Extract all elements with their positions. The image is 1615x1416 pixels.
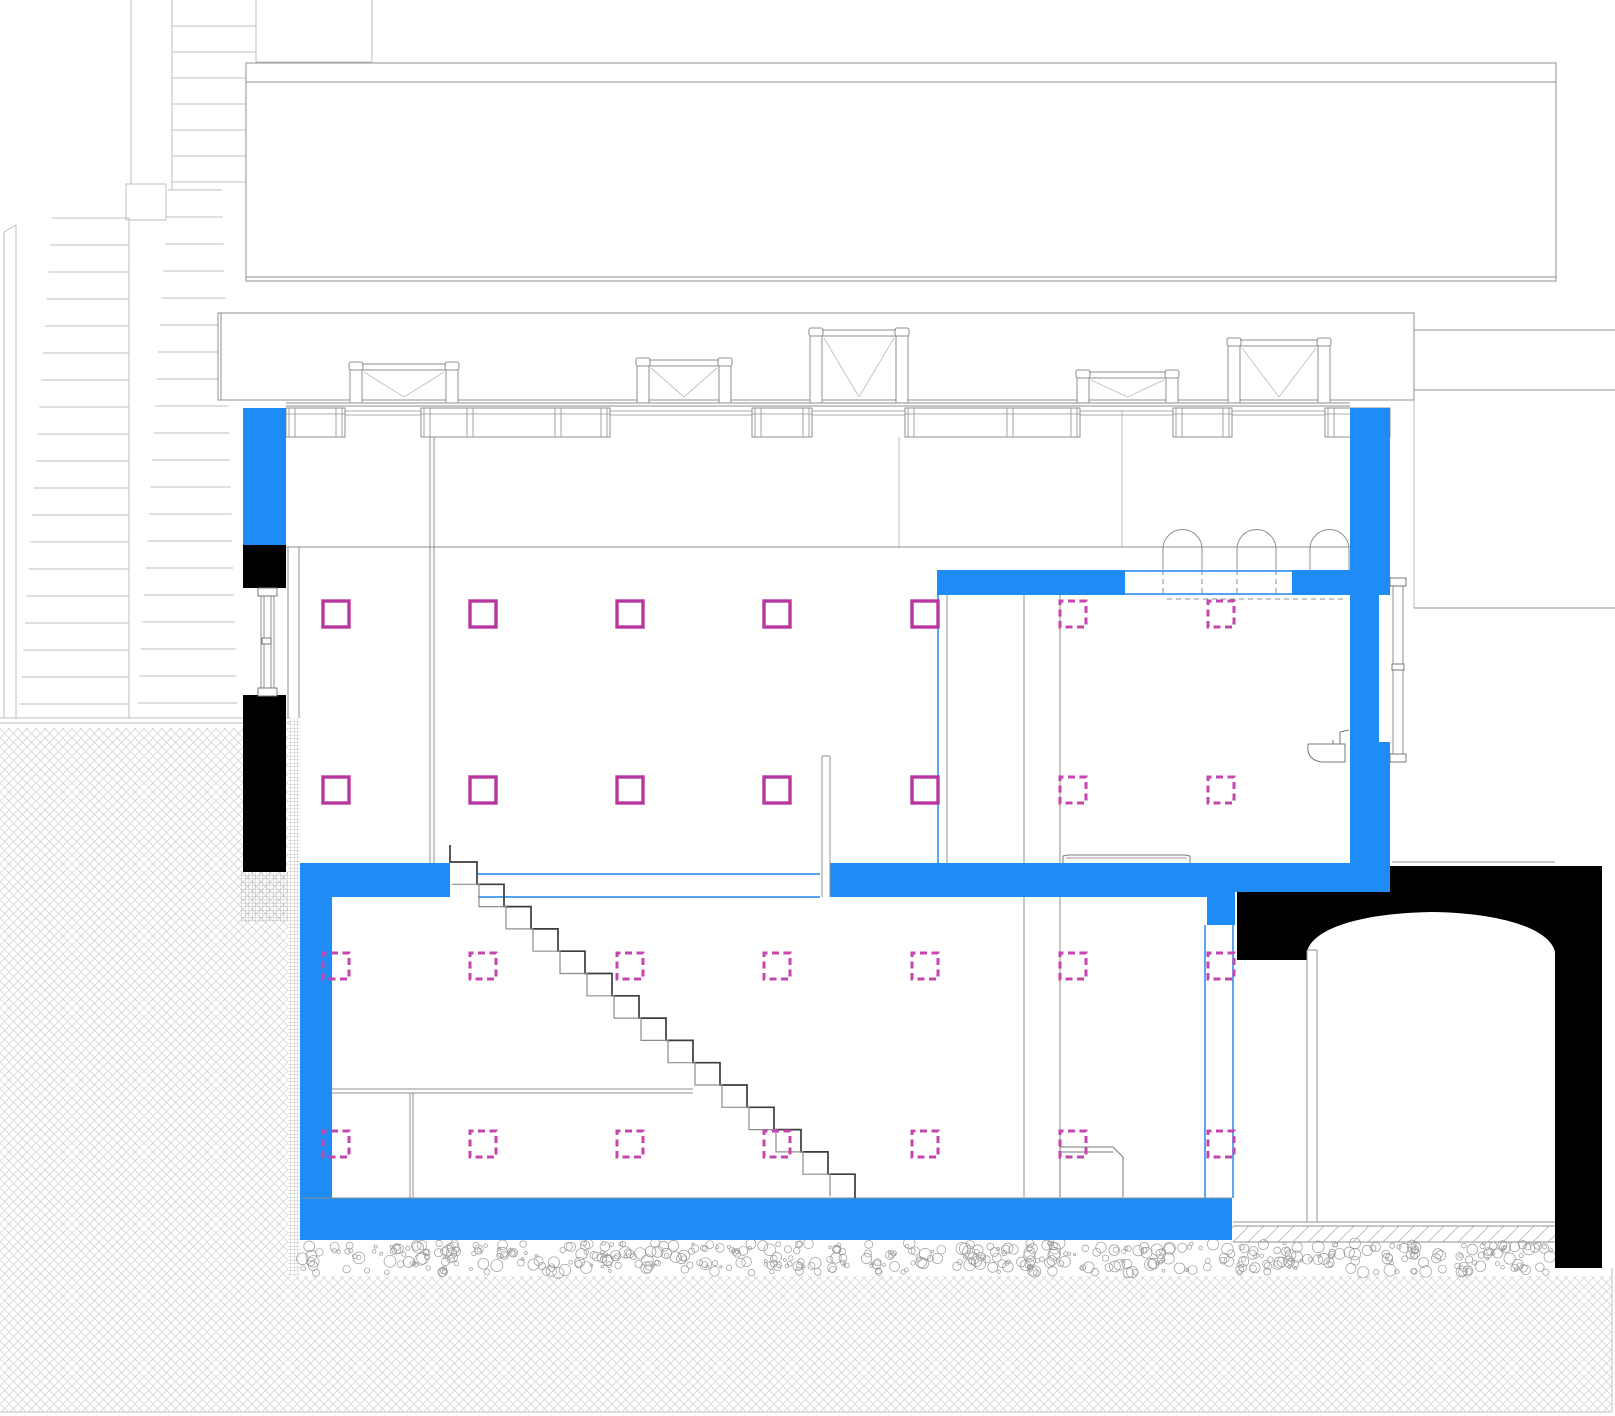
stair: [450, 845, 855, 1198]
grid-square-dashed: [1208, 601, 1234, 627]
vaulted-cellar-wall: [1237, 866, 1602, 1268]
grid-square-solid: [764, 777, 790, 803]
grid-square-solid: [323, 777, 349, 803]
grid-square-dashed: [1208, 953, 1234, 979]
grid-square-dashed: [1208, 777, 1234, 803]
roof-structure: [218, 63, 1615, 400]
grid-square-solid: [323, 601, 349, 627]
grid-square-solid: [617, 777, 643, 803]
grid-square-dashed: [1208, 1131, 1234, 1157]
grid-square-dashed: [1060, 601, 1086, 627]
grid-square-dashed: [1060, 777, 1086, 803]
grid-square-dashed: [470, 1131, 496, 1157]
new-walls-blue: [243, 408, 1390, 1240]
grid-square-dashed: [1060, 953, 1086, 979]
grid-square-dashed: [764, 953, 790, 979]
grid-square-dashed: [617, 953, 643, 979]
existing-walls-black: [243, 545, 1602, 1268]
grid-square-dashed: [912, 953, 938, 979]
shower-tray: [1063, 855, 1190, 863]
grid-square-dashed: [912, 1131, 938, 1157]
grid-square-solid: [617, 601, 643, 627]
grid-square-dashed: [764, 1131, 790, 1157]
architectural-section-drawing: [0, 0, 1615, 1416]
gravel-bed: [297, 1237, 1556, 1278]
grid-square-dashed: [617, 1131, 643, 1157]
grid-square-solid: [912, 777, 938, 803]
wall-sink: [1308, 744, 1345, 762]
clerestory-panels: [286, 408, 1390, 437]
grid-square-solid: [912, 601, 938, 627]
basement-counter: [1060, 1147, 1123, 1197]
grid-square-dashed: [470, 953, 496, 979]
section-drawing-canvas: [0, 0, 1615, 1416]
grid-square-solid: [470, 777, 496, 803]
grid-square-solid: [764, 601, 790, 627]
arched-openings: [1163, 530, 1349, 571]
grid-square-solid: [470, 601, 496, 627]
